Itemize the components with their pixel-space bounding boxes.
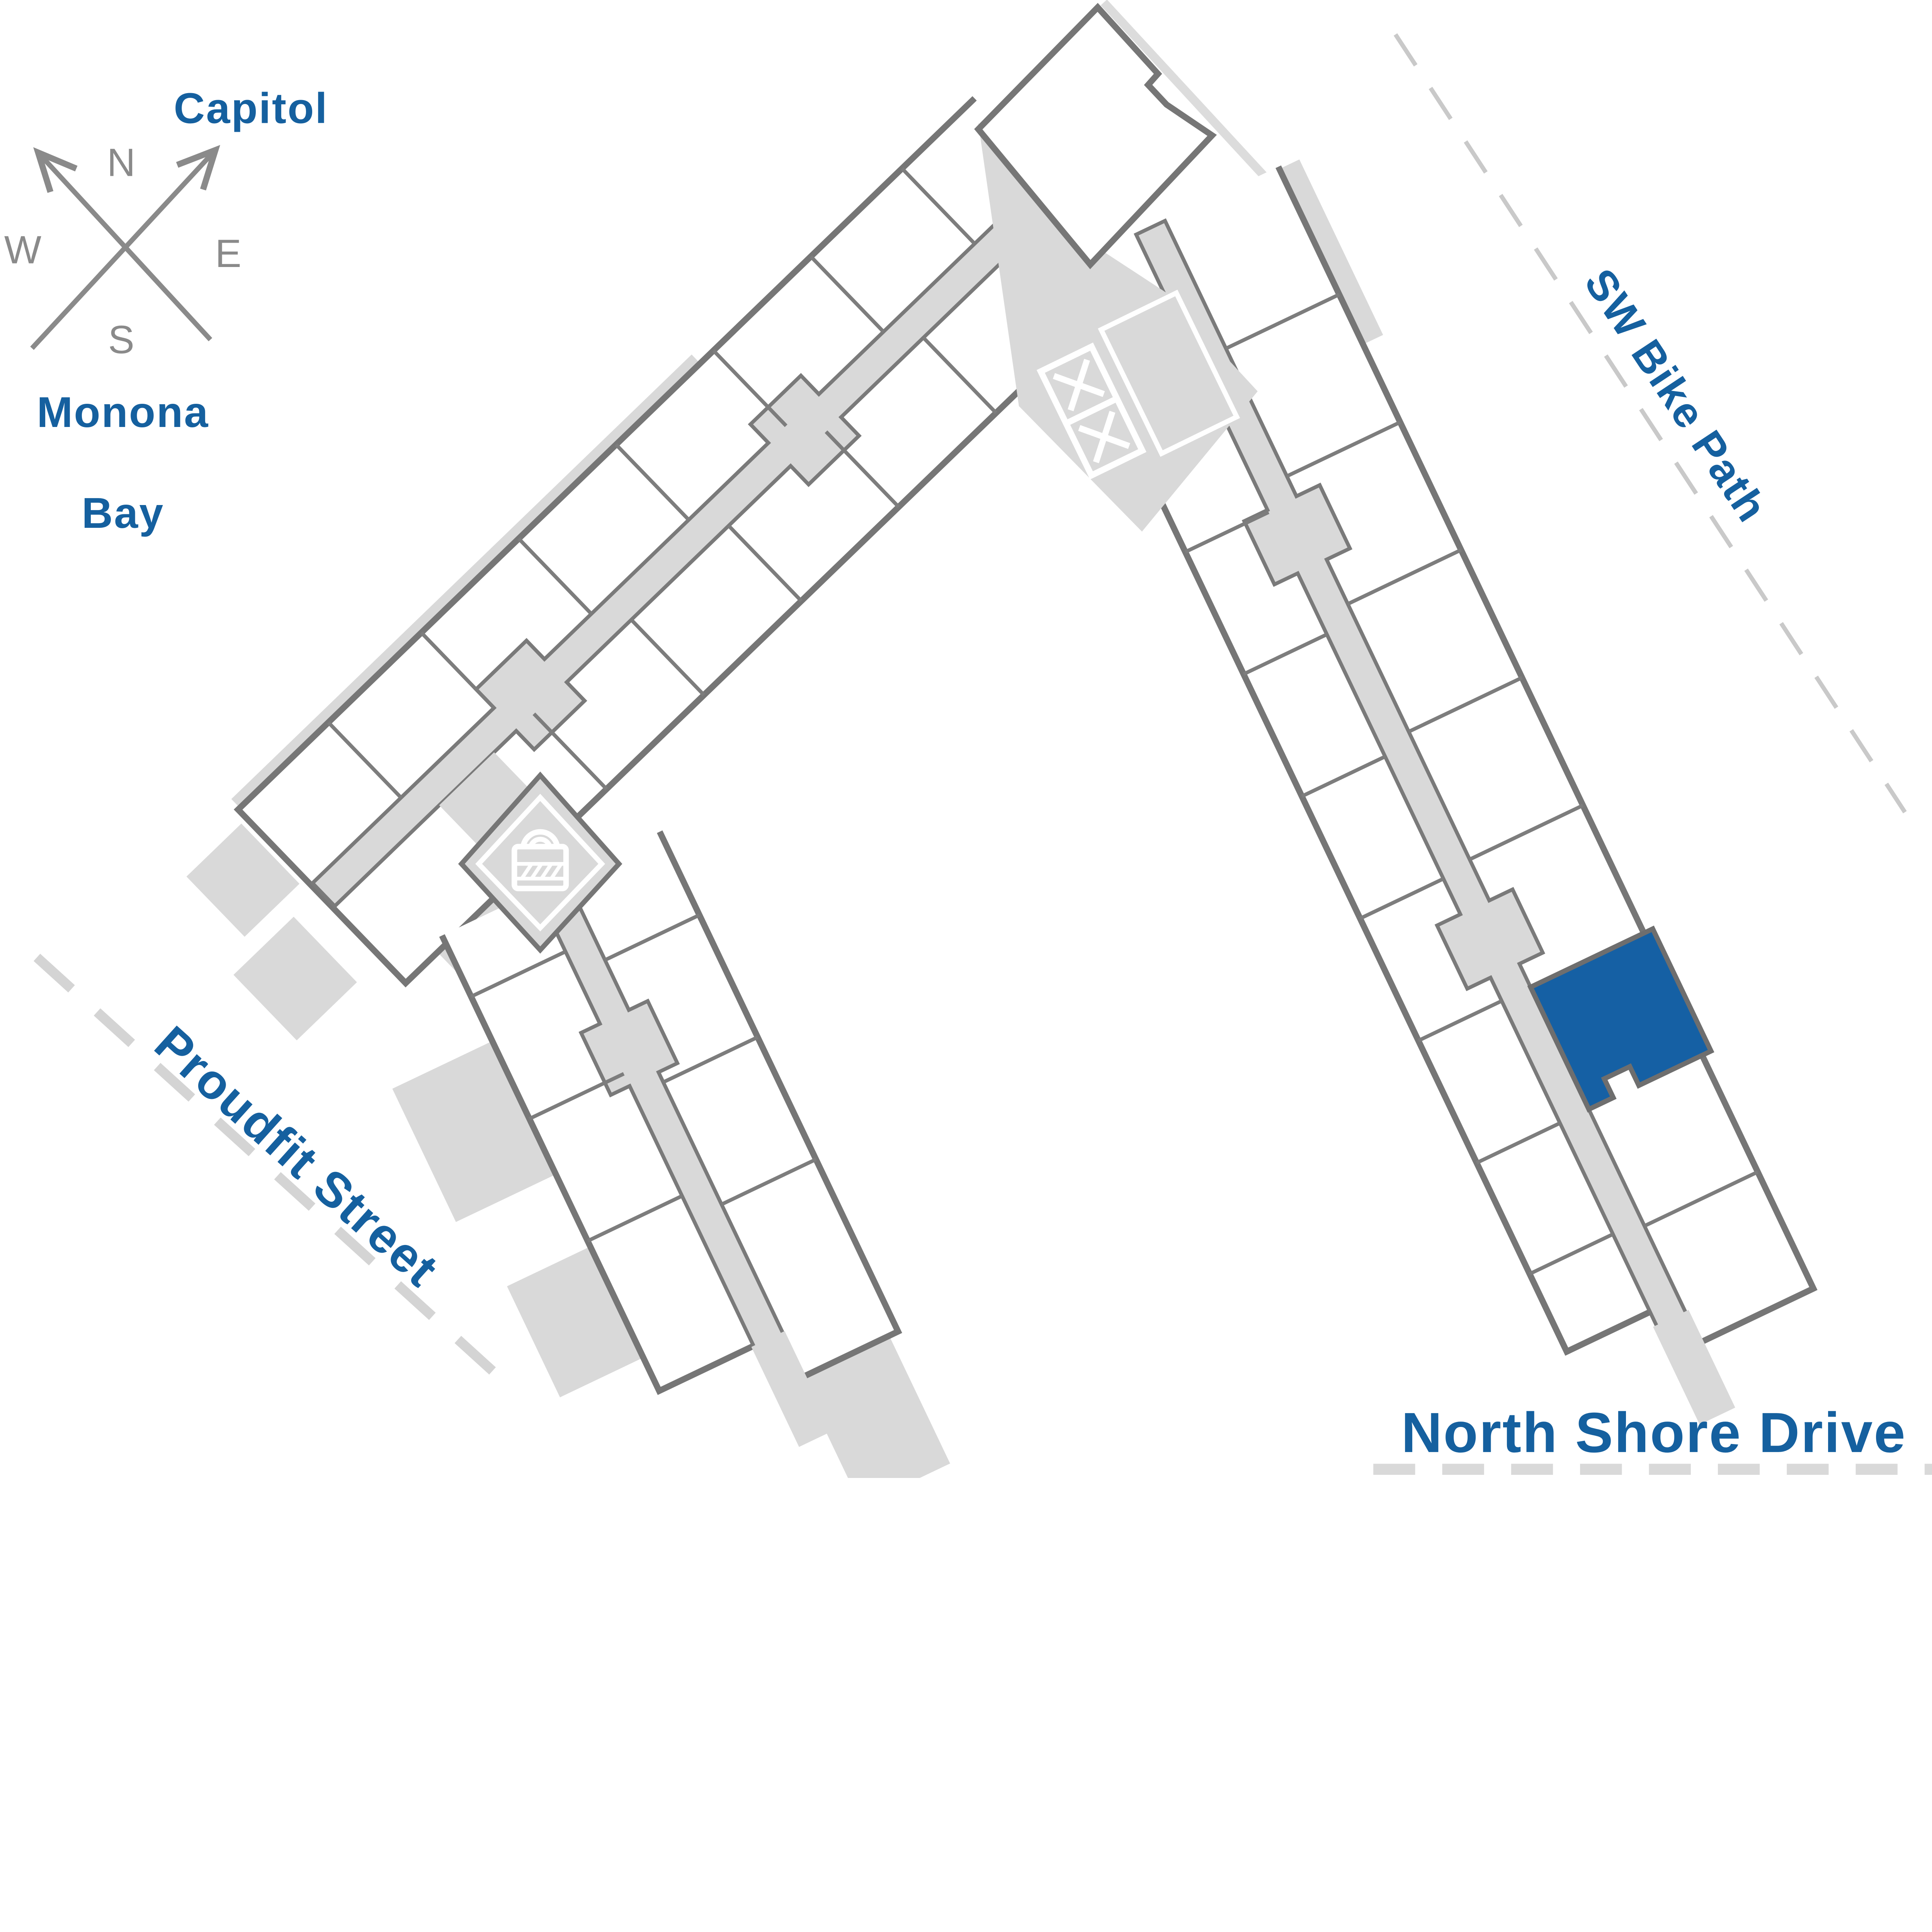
monona-bay-label-line2: Bay [82,489,164,537]
north-shore-drive-label: North Shore Drive [1401,1401,1906,1464]
capitol-label: Capitol [174,84,328,132]
floor-plate-key-map: SW Bike Path Proudfit Street North Shore… [0,0,1932,1478]
site-plan-page: SW Bike Path Proudfit Street North Shore… [0,0,1932,1478]
compass-s: S [108,318,136,362]
corridor-wing-a [294,189,1052,925]
compass-w: W [4,228,43,272]
compass-n: N [107,140,137,184]
compass-e: E [215,231,243,276]
compass-rose-icon: N W E S [4,140,243,362]
monona-bay-label-line1: Monona [37,388,209,436]
proudfit-street-label: Proudfit Street [145,1015,449,1297]
bike-path-label: SW Bike Path [1575,260,1777,531]
